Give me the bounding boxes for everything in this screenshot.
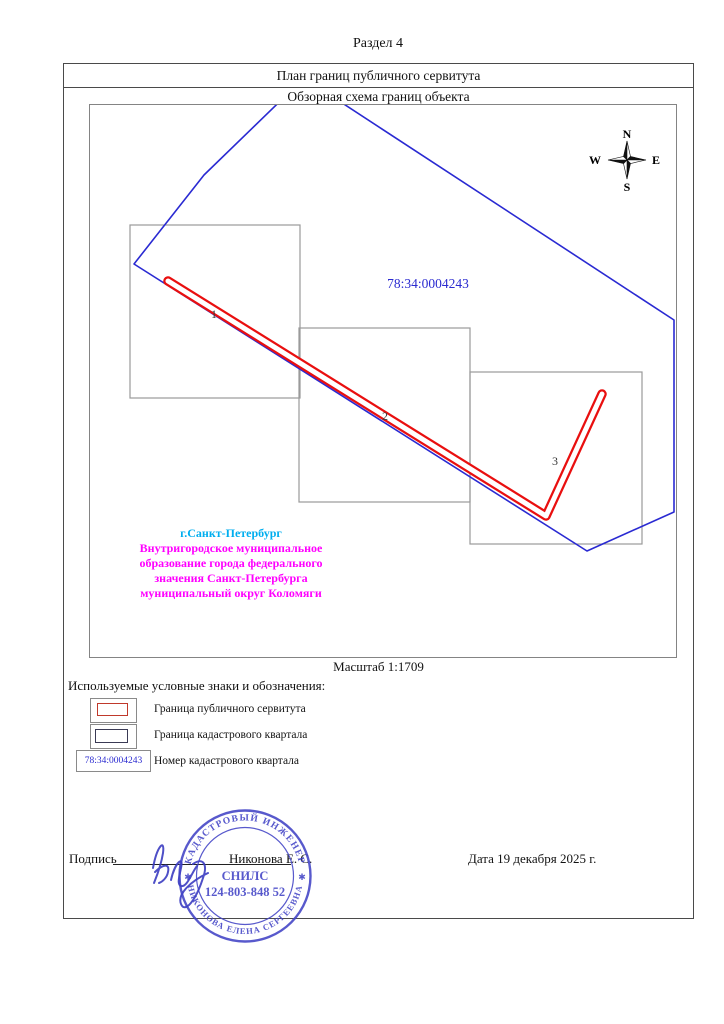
document-frame: План границ публичного сервитута Обзорна…: [63, 63, 694, 919]
stamp-snils-number: 124-803-848 52: [205, 885, 285, 899]
stamp-star-right: ✱: [298, 872, 306, 882]
compass-w: W: [589, 153, 601, 167]
legend-title: Используемые условные знаки и обозначени…: [68, 678, 325, 694]
quarter-boundary-sample: [95, 729, 128, 743]
compass-n: N: [623, 127, 632, 141]
legend-label-quarter: Граница кадастрового квартала: [154, 729, 307, 741]
stamp-arc-top-text: КАДАСТРОВЫЙ ИНЖЕНЕР: [184, 812, 306, 866]
section-title: Раздел 4: [0, 36, 724, 52]
municipal-line-1: Внутригородское муниципальное: [106, 541, 356, 556]
municipal-line-4: муниципальный округ Коломяги: [106, 586, 356, 601]
overview-map: 1 2 3 78:34:0004243 N S W: [89, 104, 677, 658]
sheet-3-label: 3: [552, 454, 558, 468]
stamp-snils-label: СНИЛС: [222, 869, 269, 883]
plan-title: План границ публичного сервитута: [64, 64, 693, 88]
legend-label-servitude: Граница публичного сервитута: [154, 703, 306, 715]
compass-e: E: [652, 153, 660, 167]
municipal-line-2: образование города федерального: [106, 556, 356, 571]
legend-symbol-quarter: [90, 724, 137, 749]
date-label: Дата 19 декабря 2025 г.: [468, 851, 596, 867]
location-text: г.Санкт-Петербург Внутригородское муници…: [106, 526, 356, 601]
sheet-1-label: 1: [211, 307, 217, 321]
map-scale: Масштаб 1:1709: [64, 659, 693, 675]
city-name: г.Санкт-Петербург: [106, 526, 356, 541]
scheme-title: Обзорная схема границ объекта: [64, 88, 693, 104]
cadastral-number-label: 78:34:0004243: [387, 276, 469, 291]
engineer-stamp: КАДАСТРОВЫЙ ИНЖЕНЕР НИКОНОВА ЕЛЕНА СЕРГЕ…: [175, 806, 315, 946]
municipal-line-3: значения Санкт-Петербурга: [106, 571, 356, 586]
signature-caption: Подпись: [69, 851, 117, 867]
sheet-2-label: 2: [382, 409, 388, 423]
compass-rose: [608, 141, 646, 179]
servitude-boundary-sample: [97, 703, 128, 716]
stamp-star-left: ✱: [184, 872, 192, 882]
svg-text:КАДАСТРОВЫЙ ИНЖЕНЕР: КАДАСТРОВЫЙ ИНЖЕНЕР: [184, 812, 306, 866]
document-page: Раздел 4 План границ публичного сервитут…: [0, 0, 724, 1024]
compass-s: S: [624, 180, 631, 194]
legend-label-number: Номер кадастрового квартала: [154, 755, 299, 767]
legend-symbol-number: 78:34:0004243: [76, 750, 151, 772]
legend-symbol-servitude: [90, 698, 137, 723]
